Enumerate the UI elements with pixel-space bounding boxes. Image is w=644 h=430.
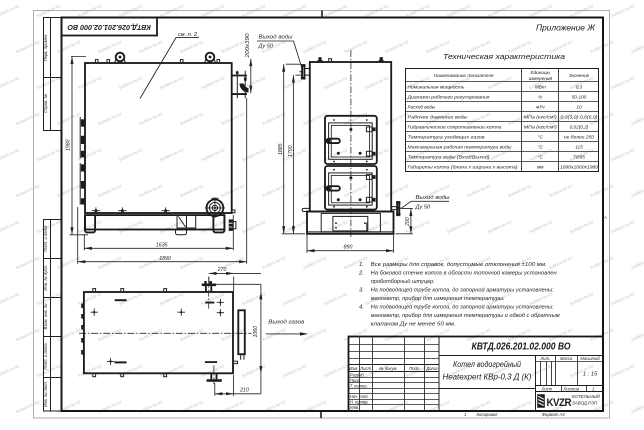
svg-text:1635: 1635	[156, 242, 168, 248]
svg-text:1 : 15: 1 : 15	[583, 372, 598, 378]
svg-text:1.: 1.	[359, 262, 364, 268]
svg-text:Heatexpert КВр-0,3 Д (К): Heatexpert КВр-0,3 Д (К)	[443, 372, 532, 381]
svg-text:Габариты котла (длина х ширина: Габариты котла (длина х ширина х высота)	[408, 165, 518, 170]
svg-text:На подводящей трубе котла, до: На подводящей трубе котла, до запорной а…	[371, 287, 554, 294]
svg-text:0,3(3,0)-0,6(6,0): 0,3(3,0)-0,6(6,0)	[561, 115, 598, 120]
svg-text:Масса: Масса	[560, 356, 573, 361]
svg-text:Пров.: Пров.	[350, 378, 361, 383]
svg-text:Ду 50: Ду 50	[258, 44, 274, 50]
svg-text:Номинальная мощность: Номинальная мощность	[408, 85, 466, 90]
svg-text:Разраб.: Разраб.	[350, 372, 365, 377]
svg-text:Диапазон рабочего регулировани: Диапазон рабочего регулирования	[406, 95, 490, 100]
svg-text:На боковой стенке котла в обла: На боковой стенке котла в области топочн…	[371, 270, 558, 277]
svg-text:МПа (кгс/см²): МПа (кгс/см²)	[524, 125, 557, 130]
svg-text:Выход газов: Выход газов	[268, 319, 304, 325]
svg-text:Взам. инв. №: Взам. инв. №	[43, 303, 48, 329]
svg-text:Лит.: Лит.	[539, 356, 550, 361]
svg-text:1980: 1980	[66, 139, 72, 151]
svg-text:Копировал: Копировал	[477, 412, 498, 417]
svg-text:м³/ч: м³/ч	[536, 105, 545, 110]
svg-text:Справ. №: Справ. №	[43, 94, 48, 113]
svg-text:210: 210	[239, 388, 249, 394]
svg-text:Перв. примен.: Перв. примен.	[43, 34, 48, 62]
svg-text:КОТЕЛЬНЫЙ: КОТЕЛЬНЫЙ	[572, 394, 600, 399]
svg-text:ЗАВОД РЭП: ЗАВОД РЭП	[572, 400, 598, 405]
svg-text:А: А	[604, 215, 607, 220]
svg-text:890: 890	[344, 245, 353, 251]
svg-text:измерения: измерения	[529, 76, 553, 81]
svg-text:Формат А3: Формат А3	[542, 412, 566, 417]
svg-text:Температура уходящих газов: Температура уходящих газов	[408, 135, 486, 140]
svg-text:Подп.: Подп.	[409, 366, 420, 371]
svg-text:10: 10	[576, 105, 582, 110]
svg-text:3.: 3.	[359, 288, 364, 294]
svg-text:Выход воды: Выход воды	[416, 195, 450, 201]
svg-text:Температура воды (Вход/Выход): Температура воды (Вход/Выход)	[408, 155, 490, 160]
svg-text:Подп. и дата: Подп. и дата	[43, 225, 48, 252]
svg-text:Единицы: Единицы	[530, 70, 550, 75]
svg-text:Лист: Лист	[359, 366, 371, 371]
svg-text:270: 270	[217, 267, 227, 273]
svg-text:50-100: 50-100	[572, 95, 587, 100]
svg-text:Максимальная рабочая температу: Максимальная рабочая температура воды	[408, 145, 513, 150]
svg-text:МВт: МВт	[535, 85, 546, 90]
svg-text:Масштаб: Масштаб	[580, 356, 600, 361]
svg-text:Значение: Значение	[569, 73, 590, 78]
svg-text:проботборный штуцер.: проботборный штуцер.	[371, 278, 435, 285]
svg-text:мм: мм	[537, 165, 544, 170]
svg-text:Техническая характеристика: Техническая характеристика	[443, 52, 565, 61]
svg-text:Нач. отд.: Нач. отд.	[350, 394, 369, 399]
svg-text:1: 1	[464, 412, 466, 417]
svg-text:1060: 1060	[253, 326, 259, 338]
svg-text:2.: 2.	[358, 271, 364, 277]
svg-text:На подводящей трубе котла, до: На подводящей трубе котла, до запорной а…	[371, 304, 554, 311]
svg-text:Котел водогрейный: Котел водогрейный	[453, 360, 521, 369]
svg-text:Лист: Лист	[541, 386, 553, 391]
svg-text:1885: 1885	[278, 143, 284, 155]
svg-text:Инв. № подл.: Инв. № подл.	[43, 381, 48, 407]
svg-text:Ду 50: Ду 50	[415, 204, 431, 210]
svg-text:см. п. 2: см. п. 2	[178, 32, 198, 38]
svg-text:290: 290	[405, 217, 411, 227]
svg-text:клапаном Ду не менее 50 мм.: клапаном Ду не менее 50 мм.	[371, 322, 456, 328]
svg-text:КВТД.026.201.02.000 ВО: КВТД.026.201.02.000 ВО	[472, 341, 571, 352]
svg-text:Н. контр.: Н. контр.	[350, 400, 369, 405]
svg-text:манометр, прибор для измерения: манометр, прибор для измерения температу…	[371, 296, 505, 302]
svg-text:МПа (кгс/см²): МПа (кгс/см²)	[524, 115, 557, 120]
svg-text:не более 250: не более 250	[564, 135, 594, 140]
svg-text:КВТД.026.201.02.000 ВО: КВТД.026.201.02.000 ВО	[67, 23, 151, 32]
svg-text:Листов: Листов	[563, 386, 580, 391]
svg-text:0,3: 0,3	[576, 85, 583, 90]
svg-text:Изм.: Изм.	[349, 366, 358, 371]
svg-text:Все размеры для справок, допус: Все размеры для справок, допустимые откл…	[371, 262, 547, 268]
svg-text:Наименование показателя: Наименование показателя	[434, 73, 494, 78]
svg-text:Подп. и дата: Подп. и дата	[43, 343, 48, 370]
svg-text:Инв. № дубл.: Инв. № дубл.	[43, 265, 48, 291]
svg-text:°С: °С	[538, 135, 544, 140]
svg-text:Гидравлическое сопротивление к: Гидравлическое сопротивление котла	[408, 125, 502, 130]
svg-text:°С: °С	[538, 155, 544, 160]
svg-text:1890: 1890	[159, 256, 171, 262]
svg-text:Расход воды: Расход воды	[408, 105, 436, 110]
svg-text:1890х1060х1980: 1890х1060х1980	[560, 165, 598, 170]
svg-text:%: %	[538, 95, 542, 100]
svg-text:115: 115	[575, 145, 583, 150]
svg-text:Утв.: Утв.	[350, 405, 360, 410]
svg-text:1790: 1790	[288, 145, 294, 157]
svg-text:Дата: Дата	[425, 366, 438, 371]
svg-text:Рабочее давление воды: Рабочее давление воды	[408, 115, 469, 120]
svg-text:70/95: 70/95	[573, 155, 585, 160]
svg-text:°С: °С	[538, 145, 544, 150]
svg-text:манометр, прибор для измерения: манометр, прибор для измерения температу…	[371, 313, 560, 319]
svg-text:1: 1	[592, 386, 594, 391]
svg-text:Выход воды: Выход воды	[259, 34, 293, 40]
svg-text:KVZR: KVZR	[547, 397, 572, 409]
svg-text:№ докум.: № докум.	[379, 366, 397, 371]
svg-text:200х390: 200х390	[245, 33, 251, 58]
svg-text:0,02(0,2): 0,02(0,2)	[570, 125, 589, 130]
svg-text:4.: 4.	[359, 305, 364, 311]
svg-text:Приложение Ж: Приложение Ж	[536, 24, 595, 33]
svg-text:Т. контр.: Т. контр.	[350, 383, 368, 388]
